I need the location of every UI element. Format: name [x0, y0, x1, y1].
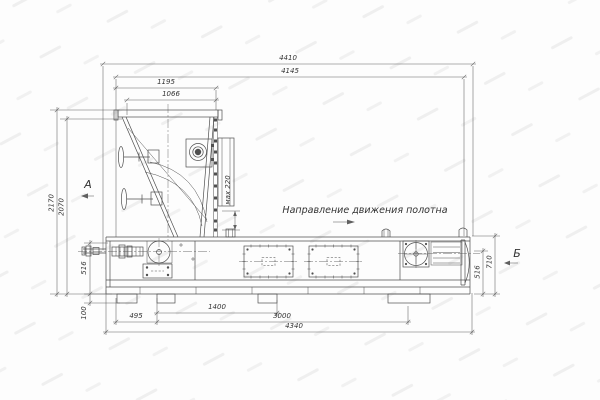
dim-base-overall: 4340	[285, 322, 303, 330]
dim-foot-height: 100	[80, 306, 88, 320]
dim-max-gap: мах 220	[224, 175, 232, 205]
dim-overall-length: 4410	[279, 54, 297, 62]
view-a-label: А	[83, 178, 92, 191]
dim-end-height: 710	[486, 255, 494, 269]
dim-body-height-left: 516	[80, 261, 88, 275]
dim-overall-height: 2170	[48, 194, 56, 212]
dim-frame-height-right: 516	[474, 265, 482, 279]
direction-note-text: Направление движения полотна	[282, 205, 447, 216]
technical-drawing-canvas: 4410 4145 1195 1066 2170 2070 516 100 А …	[0, 0, 600, 400]
dim-span-main: 3000	[273, 312, 291, 320]
view-b-label: Б	[513, 247, 521, 260]
dim-offset: 495	[129, 312, 143, 320]
watermark-pattern	[0, 0, 600, 400]
dim-hopper-inner: 1066	[162, 90, 180, 98]
dim-hopper-outer: 1195	[157, 78, 175, 86]
machine-drawing-svg: 4410 4145 1195 1066 2170 2070 516 100 А …	[0, 0, 600, 400]
dim-hopper-height: 2070	[58, 198, 66, 216]
dim-span-mid: 1400	[208, 303, 226, 311]
dim-upper-length: 4145	[281, 67, 299, 75]
